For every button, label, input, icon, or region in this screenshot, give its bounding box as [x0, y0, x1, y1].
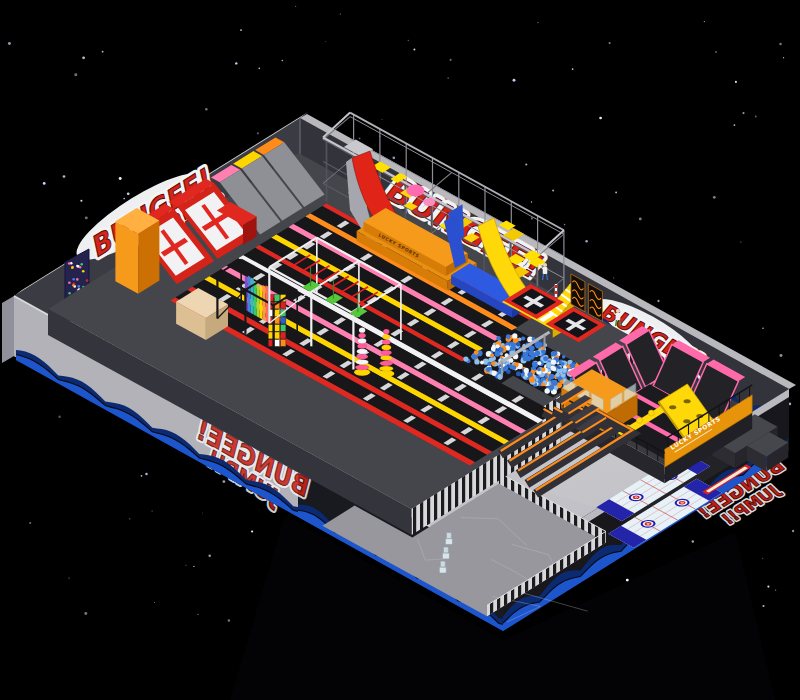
rainbow-curtain-strip: [248, 276, 251, 313]
ball: [552, 380, 558, 386]
star: [295, 6, 296, 7]
star: [513, 79, 516, 82]
star: [202, 513, 203, 514]
cheese-hole: [683, 419, 690, 423]
star: [626, 579, 629, 582]
ball: [495, 344, 499, 348]
star: [639, 217, 642, 220]
climbing-hold: [82, 270, 85, 273]
star: [154, 602, 155, 603]
star: [258, 67, 260, 69]
climbing-hold: [76, 265, 79, 268]
chair-back: [443, 547, 448, 553]
star: [531, 201, 532, 202]
ball: [521, 336, 525, 340]
ball: [541, 368, 545, 372]
ball: [554, 386, 559, 391]
star: [74, 73, 77, 76]
star: [448, 77, 449, 78]
climbing-hold: [68, 262, 71, 265]
star: [792, 530, 794, 532]
ball: [494, 351, 500, 357]
ball: [562, 368, 567, 373]
star: [525, 163, 527, 165]
climbing-hold: [71, 267, 74, 270]
ball: [529, 377, 535, 383]
color-block: [274, 325, 280, 332]
ball: [463, 356, 468, 361]
ball: [530, 356, 534, 360]
ball: [499, 347, 504, 352]
chair: [442, 553, 449, 559]
star: [735, 81, 737, 83]
ball: [561, 362, 565, 366]
climbing-hold: [78, 285, 81, 288]
spiral-pole-ring: [382, 340, 391, 345]
star: [85, 216, 88, 219]
ball: [506, 334, 511, 339]
spiral-pole-ring: [383, 334, 390, 339]
spiral-pole-ring: [358, 338, 367, 343]
star: [552, 189, 554, 191]
ball: [534, 342, 539, 347]
rainbow-curtain-strip: [251, 277, 254, 314]
star: [408, 40, 409, 41]
climbing-hold: [72, 278, 75, 281]
star: [382, 119, 383, 120]
star: [29, 522, 31, 524]
star: [564, 224, 566, 226]
spiral-pole-ring: [359, 328, 365, 333]
spiral-pole-ring: [357, 344, 367, 349]
star: [613, 277, 614, 278]
star: [240, 29, 242, 31]
ball: [496, 336, 501, 341]
mannequin-torso: [543, 267, 548, 274]
star: [235, 62, 237, 64]
ball: [549, 374, 555, 380]
climbing-hold: [79, 266, 82, 269]
star: [68, 577, 69, 578]
star: [152, 510, 153, 511]
star: [715, 51, 717, 53]
ball: [474, 359, 479, 364]
ball: [570, 363, 575, 368]
ball: [488, 357, 493, 362]
ball: [492, 371, 497, 376]
ball: [541, 382, 545, 386]
ball: [527, 372, 532, 377]
ball: [555, 372, 560, 377]
star: [789, 403, 792, 406]
west-wall-cap: [2, 296, 14, 363]
star: [340, 14, 341, 15]
ball: [512, 365, 517, 370]
mannequin-leg: [620, 320, 621, 326]
color-block: [280, 317, 286, 324]
rainbow-curtain-strip: [254, 281, 257, 316]
color-block: [274, 295, 280, 302]
star: [205, 108, 208, 111]
trampoline-park-render: BUNGEE! BUNGEE! JUMP!! JUMP!! BUNGEE! BU…: [0, 0, 800, 700]
cheese-hole: [669, 405, 676, 409]
star: [609, 42, 611, 44]
star: [43, 182, 46, 185]
star: [767, 586, 769, 588]
spiral-pole-ring: [355, 365, 369, 370]
spiral-pole-ring: [380, 361, 393, 366]
star: [392, 156, 395, 159]
climbing-hold: [68, 282, 71, 285]
ball: [490, 353, 494, 357]
chair-back: [446, 533, 451, 539]
ball: [549, 386, 553, 390]
ball: [492, 345, 496, 349]
pink-obstacle: [423, 198, 435, 206]
mannequin-leg: [616, 320, 617, 326]
ball: [552, 367, 556, 371]
star: [281, 60, 283, 62]
star: [572, 68, 574, 70]
star: [783, 57, 784, 58]
star: [615, 192, 617, 194]
star: [359, 138, 361, 140]
yellow-ball: [648, 410, 654, 416]
ball: [506, 369, 511, 374]
star: [63, 175, 66, 178]
star: [413, 49, 415, 51]
ball: [524, 368, 529, 373]
star: [762, 327, 764, 329]
star: [780, 354, 783, 357]
mannequin-head: [616, 309, 620, 313]
rainbow-curtain-strip: [263, 285, 266, 321]
star: [145, 473, 147, 475]
star: [599, 117, 602, 120]
star: [585, 240, 588, 243]
star: [197, 614, 198, 615]
star: [251, 530, 253, 532]
color-block: [280, 332, 286, 339]
spiral-pole-ring: [380, 355, 392, 360]
star: [762, 558, 763, 559]
star: [84, 612, 87, 615]
color-block: [280, 340, 286, 347]
mannequin-leg: [547, 274, 548, 280]
yellow-ball: [637, 417, 643, 423]
color-block: [280, 325, 286, 332]
star: [58, 415, 60, 417]
ball: [486, 367, 491, 372]
star: [208, 554, 210, 556]
star: [119, 177, 122, 180]
ball: [474, 350, 479, 355]
box-face: [115, 221, 138, 293]
ball: [537, 367, 541, 371]
spiral-pole-ring: [357, 349, 368, 354]
star: [80, 200, 82, 202]
star: [704, 21, 705, 22]
mannequin-torso: [616, 313, 621, 320]
climbing-hold: [86, 279, 89, 282]
star: [755, 116, 757, 118]
star: [450, 59, 452, 61]
ball: [487, 362, 491, 366]
mannequin-head: [543, 263, 547, 267]
star: [8, 42, 11, 45]
ball: [562, 355, 566, 359]
ball: [529, 345, 535, 351]
ball: [516, 371, 521, 376]
spiral-pole-ring: [382, 345, 392, 350]
chair: [445, 539, 452, 545]
star: [713, 196, 716, 199]
ball: [512, 333, 517, 338]
color-block: [274, 340, 280, 347]
mannequin-leg: [543, 274, 544, 280]
color-block: [274, 332, 280, 339]
star: [740, 242, 741, 243]
spiral-pole-ring: [358, 333, 365, 338]
chair: [439, 567, 446, 573]
star: [779, 43, 782, 46]
rainbow-curtain-strip: [260, 285, 263, 319]
ball: [532, 362, 538, 368]
ball: [543, 356, 548, 361]
star: [127, 192, 130, 195]
star: [742, 112, 744, 114]
star: [185, 565, 186, 566]
pink-obstacle: [406, 184, 424, 196]
spiral-pole-ring: [356, 359, 369, 364]
star: [692, 540, 694, 542]
spiral-pole-ring: [383, 329, 389, 334]
ball: [480, 361, 484, 365]
star: [193, 566, 194, 567]
ball: [537, 361, 541, 365]
ball: [528, 350, 534, 356]
ball: [511, 345, 516, 350]
star: [228, 619, 230, 621]
rainbow-curtain-strip: [257, 284, 260, 318]
chair-back: [440, 561, 445, 567]
ball: [523, 376, 527, 380]
spiral-pole-ring: [381, 350, 392, 355]
star: [657, 300, 659, 302]
star: [141, 475, 143, 477]
cheese-hole: [684, 399, 691, 403]
star: [775, 590, 776, 591]
spiral-pole-ring: [356, 354, 368, 359]
climbing-hold: [76, 278, 79, 281]
star: [531, 217, 533, 219]
star: [129, 518, 130, 519]
star: [763, 605, 765, 607]
ball: [551, 351, 556, 356]
ball: [516, 342, 520, 346]
ball: [522, 352, 526, 356]
climbing-hold: [80, 263, 83, 266]
star: [257, 132, 259, 134]
ball: [534, 350, 540, 356]
star: [102, 51, 104, 53]
star: [123, 198, 125, 200]
climbing-hold: [72, 284, 75, 287]
spiral-pole-ring: [379, 366, 393, 371]
star: [325, 41, 326, 42]
climbing-hold: [68, 292, 71, 295]
color-block: [280, 302, 286, 309]
ball: [551, 360, 556, 365]
star: [82, 56, 85, 59]
star: [733, 124, 735, 126]
star: [537, 22, 538, 23]
